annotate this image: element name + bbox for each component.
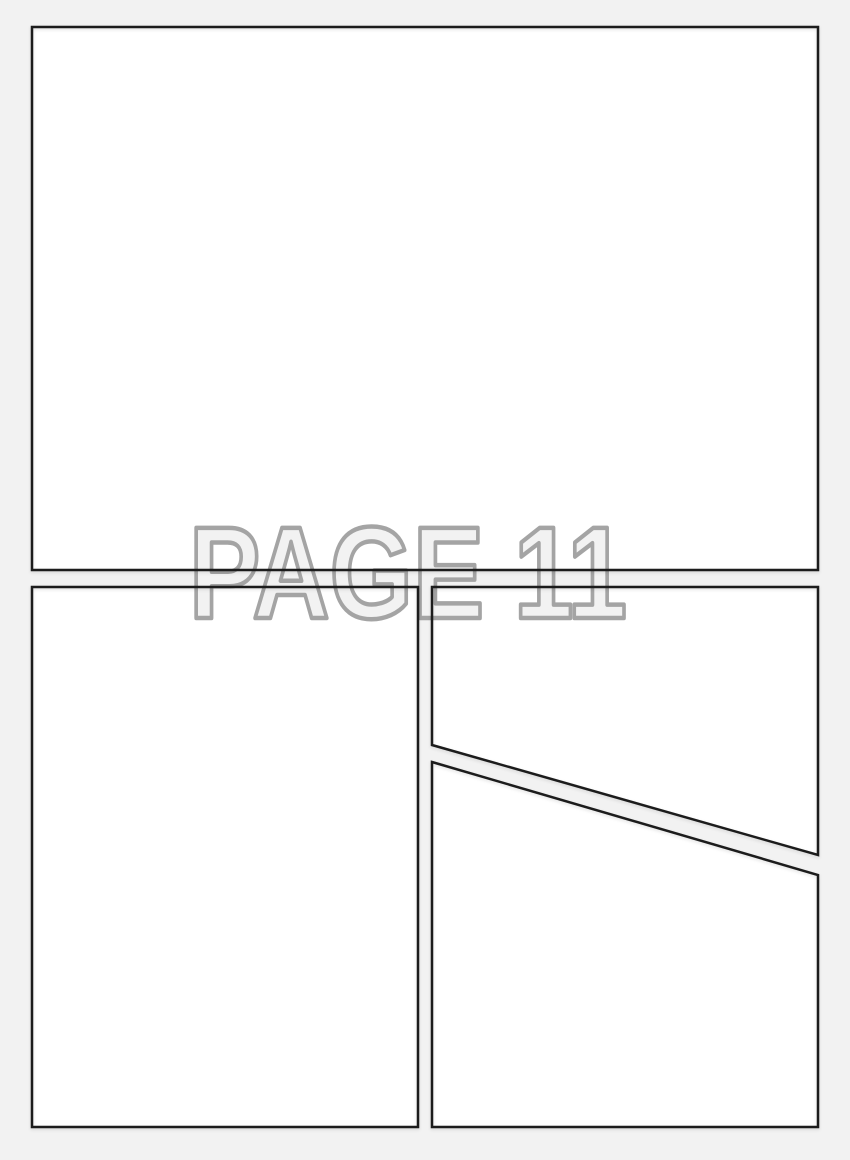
page-number-watermark: PAGE 11 — [189, 499, 627, 646]
comic-page-canvas: PAGE 11 — [0, 0, 850, 1160]
panel-1-top — [32, 27, 818, 570]
panel-2-bottom-left — [32, 587, 418, 1127]
comic-page-template: PAGE 11 — [0, 0, 850, 1160]
